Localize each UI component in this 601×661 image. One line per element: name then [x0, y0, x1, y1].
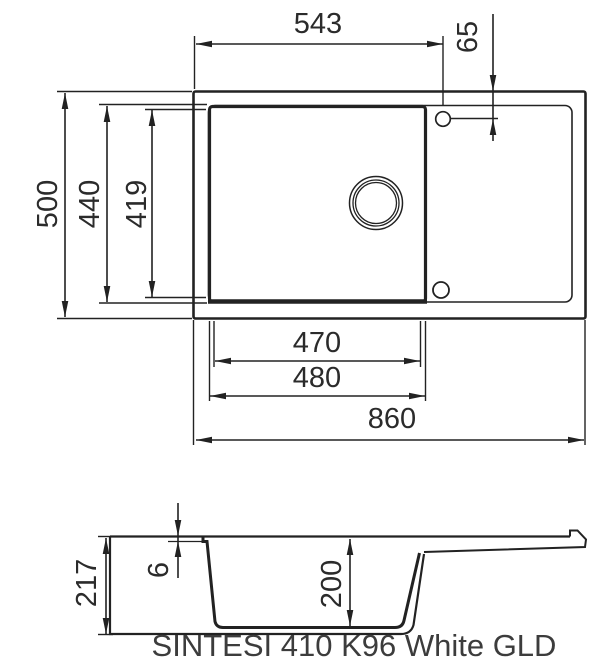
dim-label-860: 860: [368, 403, 416, 435]
dim-label-543: 543: [294, 8, 342, 40]
dim-label-6: 6: [143, 562, 175, 578]
dim-label-200: 200: [316, 560, 348, 608]
dim-label-470: 470: [293, 327, 341, 359]
dim-label-480: 480: [293, 362, 341, 394]
dim-label-65: 65: [452, 21, 484, 53]
sink-technical-drawing-page: 543 65 500 440 419: [0, 0, 601, 661]
dim-label-500: 500: [32, 180, 64, 228]
product-caption: SINTESI 410 K96 White GLD: [152, 628, 557, 661]
dim-label-217: 217: [71, 559, 103, 607]
sink-technical-drawing: 543 65 500 440 419: [0, 0, 601, 661]
dim-label-440: 440: [74, 180, 106, 228]
dim-label-419: 419: [121, 180, 153, 228]
